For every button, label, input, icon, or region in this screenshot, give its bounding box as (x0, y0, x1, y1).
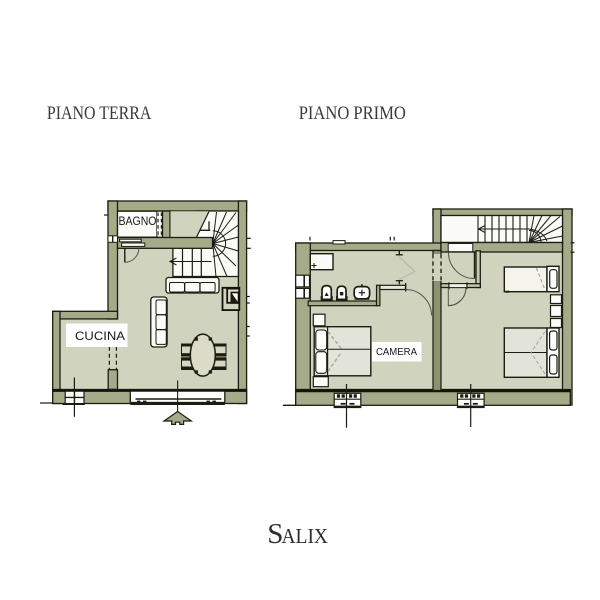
svg-text:CUCINA: CUCINA (75, 329, 126, 343)
svg-text:ALIX: ALIX (282, 524, 329, 548)
svg-text:CAMERA: CAMERA (376, 347, 417, 358)
svg-text:PIANO TERRA: PIANO TERRA (47, 103, 152, 124)
svg-text:BAGNO: BAGNO (119, 214, 157, 228)
svg-text:PIANO PRIMO: PIANO PRIMO (299, 103, 406, 124)
